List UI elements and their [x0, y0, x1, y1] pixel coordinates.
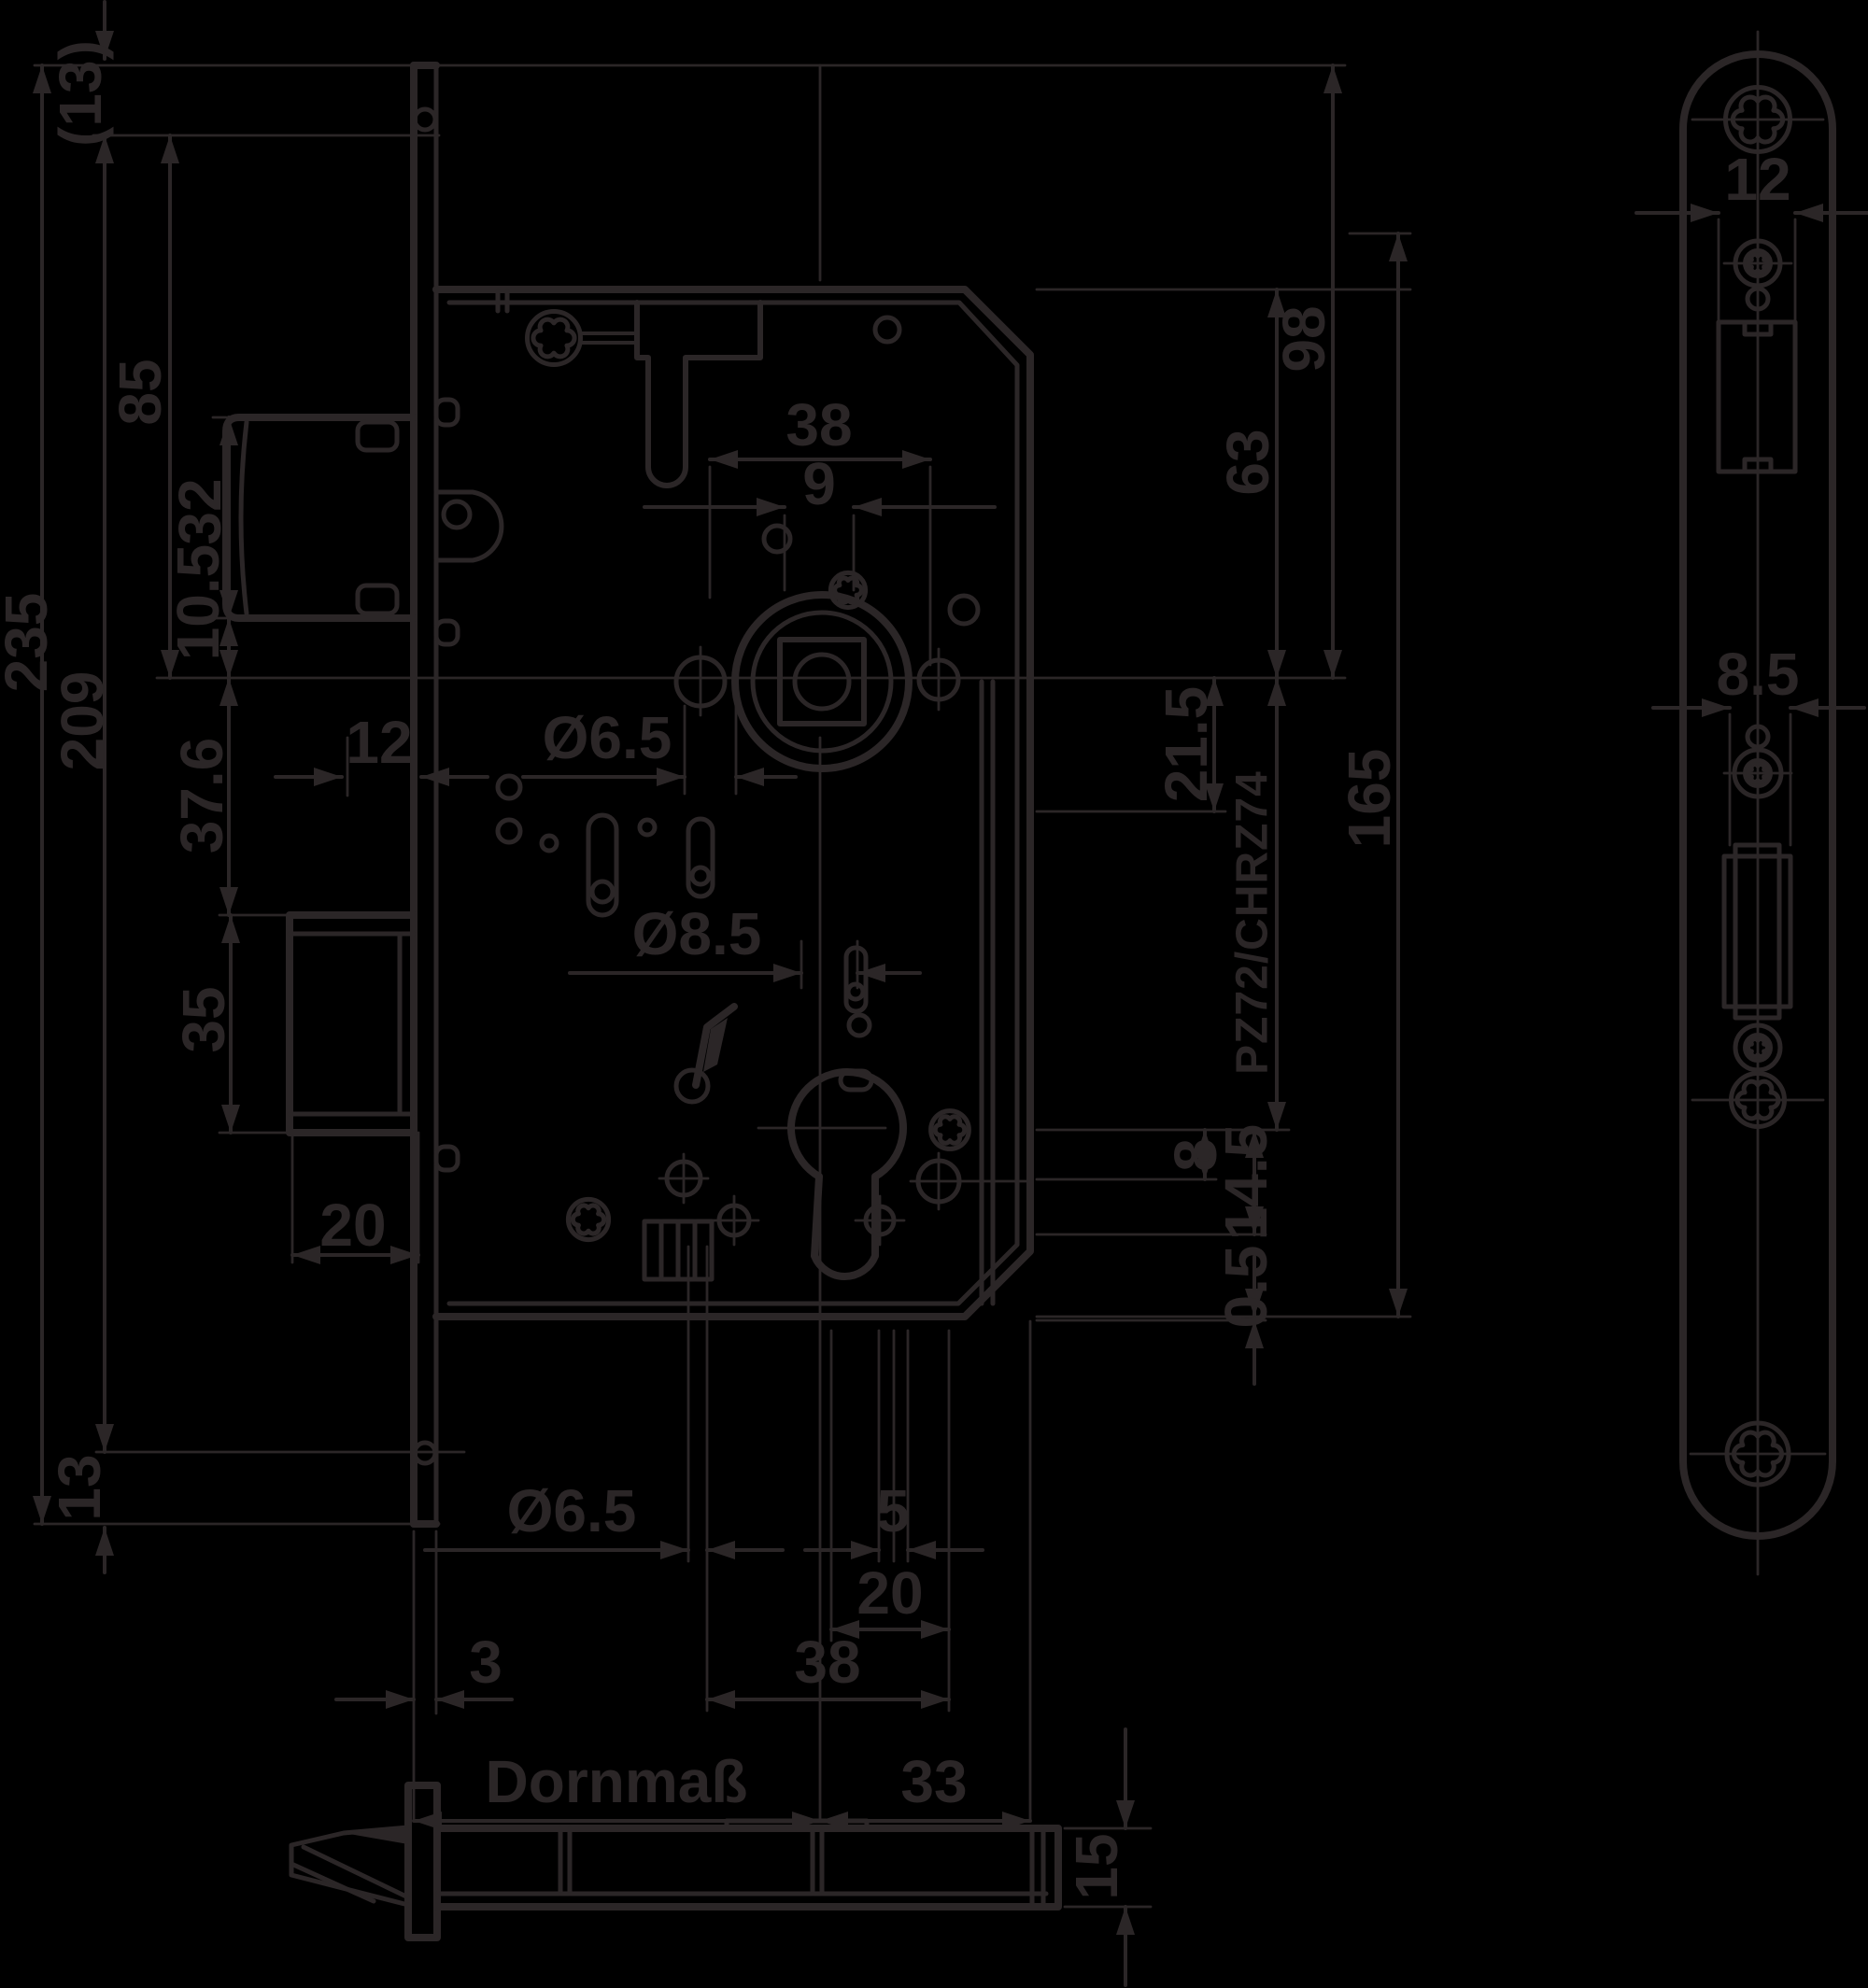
dim-label-13-top: (13): [47, 40, 114, 147]
drawing-canvas: (13) 235 209 13 85 32 10.5 37.6 35 20 12…: [0, 0, 1868, 1988]
dim-label-10-5: 10.5: [164, 544, 232, 661]
euro-cylinder-hole: [791, 1072, 903, 1276]
dim-label-cylinder-code: PZ72/CHRZ74: [1228, 770, 1278, 1075]
case-screw-bottom-left: [568, 1199, 608, 1239]
follower-screw: [830, 572, 865, 607]
small-hole: [950, 596, 978, 624]
dim-label-35: 35: [170, 986, 237, 1052]
dim-label-dia6-5-upper: Ø6.5: [543, 704, 672, 771]
dim-label-dornmass: Dornmaß: [486, 1748, 748, 1815]
dim-label-15: 15: [1063, 1833, 1130, 1899]
small-hole: [640, 820, 655, 835]
dim-label-20-lower: 20: [856, 1559, 923, 1627]
dim-label-dia8-5: Ø8.5: [632, 900, 762, 967]
dim-label-20-bolt: 20: [319, 1191, 386, 1259]
cylinder-screw: [931, 1111, 969, 1149]
faceplate-tab: [436, 400, 458, 425]
faceplate-edge: [414, 65, 436, 1524]
dim-label-21-5: 21.5: [1153, 686, 1220, 803]
faceplate-screw-hole-top: [415, 109, 435, 130]
dim-label-38-upper: 38: [785, 391, 852, 458]
change-lever: [676, 1007, 734, 1102]
dim-label-63: 63: [1214, 429, 1281, 495]
dim-label-38-lower: 38: [794, 1628, 860, 1696]
case-screw-top-left: [528, 312, 581, 365]
extension-lines: [35, 32, 1825, 1907]
dim-label-9: 9: [802, 450, 836, 517]
handle-follower-hub: [735, 572, 909, 768]
deadbolt: [290, 915, 414, 1133]
slot-hole: [692, 867, 709, 884]
faceplate-tab: [436, 621, 458, 644]
latch-spring-guide: [436, 492, 502, 560]
small-hole: [875, 317, 899, 342]
slot: [846, 948, 866, 1011]
dim-label-32: 32: [166, 478, 233, 544]
dim-label-13-bottom: 13: [46, 1454, 113, 1520]
dimension-labels: (13) 235 209 13 85 32 10.5 37.6 35 20 12…: [0, 40, 1799, 1900]
dim-label-33: 33: [900, 1748, 967, 1815]
small-hole: [542, 836, 557, 851]
faceplate-tab: [436, 1147, 458, 1170]
dim-label-165: 165: [1336, 749, 1403, 849]
dim-label-98: 98: [1270, 305, 1337, 372]
dim-label-5: 5: [876, 1477, 910, 1544]
dim-label-37-6: 37.6: [168, 738, 235, 854]
dim-label-3: 3: [469, 1628, 502, 1696]
dim-label-85: 85: [106, 359, 174, 425]
slot-hole: [592, 881, 613, 902]
dim-label-12-left: 12: [346, 709, 412, 776]
dimension-lines: [42, 2, 1868, 1985]
dim-label-8-5-plate: 8.5: [1717, 641, 1800, 708]
dim-label-12-plate: 12: [1724, 146, 1790, 213]
hatched-guide: [644, 1221, 712, 1279]
small-hole: [498, 820, 520, 842]
latch-edge-on: [291, 1827, 408, 1905]
dim-label-0-5: 0.5: [1212, 1246, 1280, 1329]
guide-hole: [444, 501, 470, 528]
small-hole: [849, 1015, 870, 1036]
slot-hole: [848, 984, 863, 999]
small-hole: [498, 776, 520, 798]
small-hole: [764, 526, 790, 552]
lock-case-inner-outline: [449, 303, 1017, 1304]
dim-label-14-5: 14.5: [1212, 1124, 1280, 1241]
dim-label-dia6-5-lower: Ø6.5: [507, 1477, 637, 1544]
lock-technical-drawing: (13) 235 209 13 85 32 10.5 37.6 35 20 12…: [0, 0, 1868, 1988]
latch-bolt: [226, 417, 414, 618]
dim-label-209: 209: [49, 671, 116, 771]
